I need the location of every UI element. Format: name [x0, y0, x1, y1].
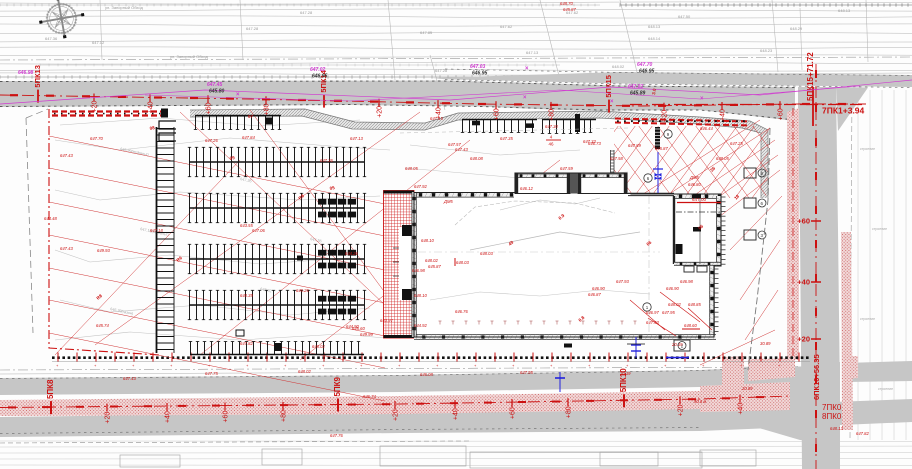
svg-text:646.98: 646.98 [680, 279, 693, 284]
svg-text:+40: +40 [453, 408, 460, 420]
svg-text:644.26: 644.26 [345, 251, 358, 256]
svg-text:648.02: 648.02 [425, 258, 438, 263]
svg-text:647.82: 647.82 [240, 341, 253, 346]
svg-text:+80: +80 [280, 410, 287, 422]
svg-text:+80: +80 [549, 109, 556, 121]
svg-text:647.89: 647.89 [628, 143, 641, 148]
svg-text:строение: строение [860, 147, 875, 151]
svg-text:6ПК10+56.35: 6ПК10+56.35 [812, 354, 821, 400]
svg-text:646.08: 646.08 [420, 372, 433, 377]
svg-text:647.02: 647.02 [310, 67, 326, 73]
svg-text:20.19: 20.19 [619, 371, 631, 376]
svg-text:648.10: 648.10 [421, 238, 434, 243]
svg-text:647.36: 647.36 [320, 158, 333, 163]
svg-text:647.26: 647.26 [205, 138, 218, 143]
svg-text:647.82: 647.82 [856, 431, 869, 436]
svg-text:648.23: 648.23 [760, 48, 773, 53]
svg-text:647.50: 647.50 [678, 14, 691, 19]
svg-text:647.84: 647.84 [242, 135, 255, 140]
svg-text:+20: +20 [797, 335, 810, 344]
svg-text:646.44: 646.44 [700, 126, 713, 131]
svg-text:строение: строение [872, 227, 887, 231]
svg-text:646.76: 646.76 [455, 309, 468, 314]
svg-text:646.98: 646.98 [18, 70, 34, 76]
svg-text:645.60: 645.60 [352, 326, 365, 331]
svg-text:5ПК9: 5ПК9 [333, 376, 342, 396]
svg-text:643.97: 643.97 [380, 318, 393, 323]
svg-text:649.93: 649.93 [97, 248, 110, 253]
svg-text:647.70: 647.70 [637, 62, 653, 68]
svg-text:646.26: 646.26 [296, 288, 309, 293]
svg-text:+40: +40 [738, 403, 745, 415]
svg-text:+60: +60 [222, 411, 229, 423]
svg-text:644.48: 644.48 [44, 216, 57, 221]
svg-text:647.13: 647.13 [350, 136, 363, 141]
svg-text:647.43: 647.43 [60, 246, 73, 251]
svg-text:+60: +60 [509, 407, 516, 419]
svg-text:645.89: 645.89 [630, 91, 646, 97]
svg-text:5ПК8: 5ПК8 [46, 379, 55, 399]
svg-text:648.02: 648.02 [298, 369, 311, 374]
svg-text:07: 07 [248, 114, 254, 119]
svg-text:ул. Запорный Обход: ул. Запорный Обход [170, 54, 209, 59]
svg-text:647.95: 647.95 [662, 310, 675, 315]
svg-text:647.43: 647.43 [455, 147, 468, 152]
svg-text:647.43: 647.43 [123, 376, 136, 381]
svg-text:648.02: 648.02 [612, 64, 625, 69]
svg-text:+20: +20 [662, 110, 669, 122]
svg-text:+60: +60 [777, 108, 784, 120]
svg-text:646.73: 646.73 [588, 141, 601, 146]
svg-text:647.59: 647.59 [560, 166, 573, 171]
svg-text:648.05: 648.05 [405, 166, 418, 171]
svg-text:647.18: 647.18 [150, 228, 163, 233]
svg-text:647.93: 647.93 [616, 279, 629, 284]
svg-text:+20: +20 [376, 106, 383, 118]
svg-text:646.90: 646.90 [666, 286, 679, 291]
svg-text:20.89: 20.89 [741, 386, 753, 391]
svg-text:647.28: 647.28 [246, 26, 259, 31]
svg-text:648.03: 648.03 [456, 260, 469, 265]
svg-text:647.82: 647.82 [628, 84, 644, 90]
svg-text:648.13: 648.13 [838, 8, 851, 13]
svg-text:+60: +60 [494, 108, 501, 120]
svg-text:645.87: 645.87 [563, 7, 576, 12]
svg-text:648.03: 648.03 [480, 251, 493, 256]
svg-text:+40: +40 [164, 411, 171, 423]
svg-text:648.85: 648.85 [688, 302, 701, 307]
svg-text:647.28: 647.28 [300, 10, 313, 15]
svg-text:647.45: 647.45 [207, 82, 223, 88]
svg-text:ДМ5: ДМ5 [443, 199, 453, 204]
svg-text:7ПК0: 7ПК0 [822, 403, 842, 412]
svg-text:8ПК0: 8ПК0 [822, 412, 842, 421]
svg-text:20.19: 20.19 [671, 342, 683, 347]
svg-text:×: × [236, 92, 240, 98]
svg-text:+80: +80 [566, 406, 573, 418]
svg-text:646.95: 646.95 [472, 71, 488, 77]
svg-text:ДМ5: ДМ5 [689, 175, 699, 180]
svg-text:647.30: 647.30 [545, 124, 558, 129]
svg-text:+40: +40 [720, 109, 727, 121]
svg-text:+20: +20 [392, 409, 399, 421]
svg-text:7ПК1+3.94: 7ПК1+3.94 [822, 106, 865, 116]
svg-text:647.03: 647.03 [470, 64, 486, 70]
svg-text:647.13: 647.13 [526, 50, 539, 55]
svg-text:×: × [610, 99, 614, 105]
svg-text:46: 46 [548, 142, 554, 147]
svg-text:647.70: 647.70 [90, 136, 103, 141]
svg-text:647.25: 647.25 [730, 141, 743, 146]
svg-text:647.85: 647.85 [420, 30, 433, 35]
svg-text:646.80: 646.80 [688, 182, 701, 187]
svg-text:647.75: 647.75 [205, 371, 218, 376]
svg-text:647.43: 647.43 [60, 153, 73, 158]
svg-text:646.90: 646.90 [592, 286, 605, 291]
svg-text:644.92: 644.92 [414, 323, 427, 328]
svg-text:648.29: 648.29 [790, 26, 803, 31]
svg-text:646.95: 646.95 [312, 74, 328, 80]
svg-text:646.12: 646.12 [520, 186, 533, 191]
svg-text:647.12: 647.12 [92, 40, 105, 45]
svg-text:647.15: 647.15 [430, 116, 443, 121]
svg-text:646.95: 646.95 [639, 69, 655, 75]
svg-text:648.13: 648.13 [648, 24, 661, 29]
svg-text:+80: +80 [263, 103, 270, 115]
svg-text:+20: +20 [677, 404, 684, 416]
svg-text:648.70: 648.70 [560, 1, 573, 6]
svg-text:646.98: 646.98 [412, 268, 425, 273]
svg-text:строение: строение [878, 387, 893, 391]
svg-text:648.13: 648.13 [830, 426, 843, 431]
svg-text:+40: +40 [797, 278, 810, 287]
svg-text:648.14: 648.14 [648, 36, 661, 41]
svg-text:647.95: 647.95 [520, 370, 533, 375]
svg-text:645.87: 645.87 [428, 264, 441, 269]
svg-text:647.62: 647.62 [500, 24, 513, 29]
svg-text:30.89: 30.89 [760, 341, 771, 346]
svg-text:645.74: 645.74 [96, 323, 109, 328]
svg-text:+60: +60 [797, 217, 810, 226]
svg-text:646.87: 646.87 [588, 292, 601, 297]
svg-text:5ПК13: 5ПК13 [33, 65, 42, 87]
svg-text:647.35: 647.35 [500, 136, 513, 141]
svg-text:647.58: 647.58 [610, 156, 623, 161]
svg-text:5ПК15+71.72: 5ПК15+71.72 [806, 52, 815, 101]
svg-text:645.87: 645.87 [655, 146, 668, 151]
svg-text:648.10: 648.10 [414, 293, 427, 298]
svg-text:646.74: 646.74 [363, 394, 376, 399]
svg-text:648.02: 648.02 [312, 344, 325, 349]
svg-text:+40: +40 [148, 101, 155, 113]
svg-text:5ПК15: 5ПК15 [604, 75, 613, 97]
svg-text:648.39: 648.39 [240, 293, 253, 298]
svg-text:×: × [525, 66, 529, 72]
svg-text:+20: +20 [91, 101, 98, 113]
svg-text:647.92: 647.92 [414, 184, 427, 189]
svg-text:647.00: 647.00 [692, 197, 706, 202]
svg-text:647.76: 647.76 [330, 433, 343, 438]
svg-text:90.8 м: 90.8 м [694, 399, 706, 404]
svg-text:649.99: 649.99 [360, 332, 373, 337]
svg-text:строение: строение [860, 317, 875, 321]
svg-text:+20: +20 [105, 412, 112, 424]
svg-text:+60: +60 [205, 102, 212, 114]
svg-text:646.97: 646.97 [646, 310, 659, 315]
svg-text:×: × [523, 95, 527, 101]
svg-text:×: × [700, 96, 704, 102]
svg-text:647.06: 647.06 [252, 228, 265, 233]
svg-text:648.60: 648.60 [684, 323, 697, 328]
svg-text:648.05: 648.05 [716, 156, 729, 161]
svg-text:645.80: 645.80 [209, 89, 225, 95]
svg-text:ул. Запорный Обход: ул. Запорный Обход [105, 5, 144, 10]
svg-text:647.36: 647.36 [45, 36, 58, 41]
svg-text:648.08: 648.08 [470, 156, 483, 161]
